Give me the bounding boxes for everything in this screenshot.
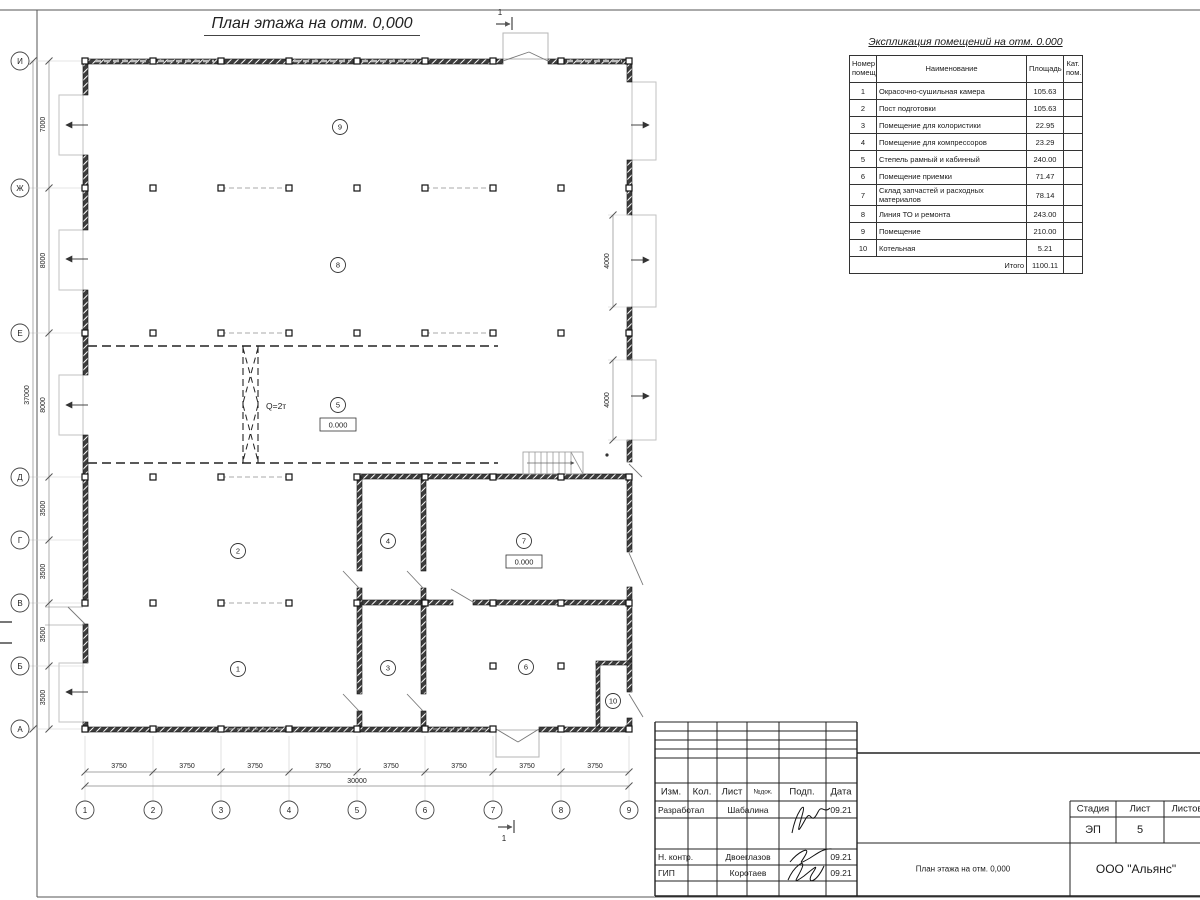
tb-date: 09.21	[830, 868, 851, 878]
grid-bubble-label: Г	[18, 536, 23, 545]
column-marker	[490, 185, 496, 191]
room-number: 4	[386, 537, 390, 546]
room-number-cell: 3	[850, 117, 877, 134]
bottom-door-leaf	[518, 729, 539, 742]
top-vestibule	[503, 33, 548, 59]
vestibules	[496, 33, 548, 757]
walls	[83, 59, 632, 732]
room-area-cell: 5.21	[1027, 240, 1064, 257]
room-cat-cell	[1064, 100, 1083, 117]
tb-company: ООО "Альянс"	[1096, 862, 1176, 876]
room-area-cell: 243.00	[1027, 206, 1064, 223]
dim-label: 3750	[587, 763, 603, 770]
room-number: 5	[336, 401, 340, 410]
room-name-cell: Помещение приемки	[877, 168, 1027, 185]
dim-label: 3750	[519, 763, 535, 770]
elevation-value: 0.000	[515, 558, 534, 567]
column-marker	[558, 474, 564, 480]
column-marker	[82, 58, 88, 64]
signature-stroke	[788, 864, 824, 881]
schedule-row: 7Склад запчастей и расходных материалов7…	[850, 185, 1083, 206]
room-name-cell: Помещение для компрессоров	[877, 134, 1027, 151]
bottom-door-leaf	[496, 729, 518, 742]
grid-bubble-label: 2	[151, 806, 156, 815]
dim-label: 8000	[40, 253, 47, 269]
signature-stroke	[792, 807, 830, 833]
dim-label: 37000	[24, 385, 31, 405]
grid-bubble-label: Е	[17, 329, 22, 338]
column-marker	[422, 185, 428, 191]
column-marker	[626, 726, 632, 732]
room-name-cell: Котельная	[877, 240, 1027, 257]
room-cat-cell	[1064, 168, 1083, 185]
column-marker	[626, 330, 632, 336]
column-marker	[490, 600, 496, 606]
schedule-row: 9Помещение210.00	[850, 223, 1083, 240]
room-number-cell: 2	[850, 100, 877, 117]
column-marker	[218, 330, 224, 336]
room-name-cell: Линия ТО и ремонта	[877, 206, 1027, 223]
tb-col-doc: №док.	[753, 789, 772, 796]
column-marker	[626, 58, 632, 64]
schedule-header-name: Наименование	[877, 56, 1027, 83]
room-number-cell: 1	[850, 83, 877, 100]
room-name-cell: Помещение	[877, 223, 1027, 240]
grid-bubbles: ИЖЕДГВБА123456789	[11, 52, 638, 819]
dim-label: 3750	[247, 763, 263, 770]
column-marker	[150, 600, 156, 606]
dim-label: 4000	[604, 253, 611, 269]
room-area-cell: 240.00	[1027, 151, 1064, 168]
total-label: Итого	[850, 257, 1027, 274]
room-number: 7	[522, 537, 526, 546]
room-area-cell: 210.00	[1027, 223, 1064, 240]
column-marker	[82, 185, 88, 191]
grid-bubble-label: В	[17, 599, 22, 608]
room-cat-cell	[1064, 117, 1083, 134]
room-number: 9	[338, 123, 342, 132]
column-marker	[218, 474, 224, 480]
column-marker	[490, 726, 496, 732]
column-marker	[218, 58, 224, 64]
dim-label: 3500	[40, 501, 47, 517]
room-area-cell: 105.63	[1027, 83, 1064, 100]
tb-col-list: Лист	[722, 787, 743, 798]
grid-bubble-label: И	[17, 57, 23, 66]
column-marker	[490, 474, 496, 480]
column-marker	[422, 474, 428, 480]
room-area-cell: 78.14	[1027, 185, 1064, 206]
schedule-row: 1Окрасочно-сушильная камера105.63	[850, 83, 1083, 100]
grid-bubble-label: 9	[627, 806, 632, 815]
room-schedule: Экспликация помещений на отм. 0.000 Номе…	[849, 36, 1082, 274]
column-marker	[558, 58, 564, 64]
section-mark-label: 1	[498, 8, 503, 17]
grid-bubble-label: 7	[491, 806, 496, 815]
column-marker	[490, 663, 496, 669]
room-name-cell: Помещение для колористики	[877, 117, 1027, 134]
column-marker	[286, 58, 292, 64]
room-number: 10	[609, 697, 617, 706]
elevation-value: 0.000	[329, 421, 348, 430]
bottom-vestibule	[496, 730, 539, 757]
section-mark-label: 1	[502, 834, 507, 843]
column-marker	[82, 474, 88, 480]
room-number: 6	[524, 663, 528, 672]
column-marker	[354, 474, 360, 480]
drawing-sheet: Q=2т 1 1 3750375037503750375037503750375…	[0, 0, 1200, 900]
room-name-cell: Пост подготовки	[877, 100, 1027, 117]
schedule-total-row: Итого1100.11	[850, 257, 1083, 274]
column-marker	[422, 726, 428, 732]
schedule-row: 3Помещение для колористики22.95	[850, 117, 1083, 134]
column-marker	[150, 474, 156, 480]
column-marker	[558, 330, 564, 336]
column-marker	[558, 600, 564, 606]
room-number-cell: 8	[850, 206, 877, 223]
room-name-cell: Степель рамный и кабинный	[877, 151, 1027, 168]
room-area-cell: 22.95	[1027, 117, 1064, 134]
room-number: 2	[236, 547, 240, 556]
column-marker	[286, 185, 292, 191]
room-area-cell: 23.29	[1027, 134, 1064, 151]
column-marker	[82, 726, 88, 732]
column-marker	[558, 726, 564, 732]
grid-bubble-label: 6	[423, 806, 428, 815]
tb-doc-title: План этажа на отм. 0,000	[916, 865, 1010, 874]
top-door-leaf	[503, 52, 529, 61]
column-marker	[354, 185, 360, 191]
tb-role: Разработал	[658, 805, 704, 815]
room-number-cell: 4	[850, 134, 877, 151]
column-marker	[218, 726, 224, 732]
schedule-row: 2Пост подготовки105.63	[850, 100, 1083, 117]
schedule-title: Экспликация помещений на отм. 0.000	[849, 36, 1082, 48]
schedule-header-area: Площадь	[1027, 56, 1064, 83]
room-name-cell: Окрасочно-сушильная камера	[877, 83, 1027, 100]
schedule-table: Номер помещ. Наименование Площадь Кат. п…	[849, 55, 1083, 274]
column-marker	[82, 600, 88, 606]
room-number: 1	[236, 665, 240, 674]
room-area-cell: 105.63	[1027, 100, 1064, 117]
schedule-row: 4Помещение для компрессоров23.29	[850, 134, 1083, 151]
column-marker	[218, 600, 224, 606]
room-cat-cell	[1064, 134, 1083, 151]
grid-bubble-label: Д	[17, 473, 23, 482]
grid-bubble-label: 1	[83, 806, 88, 815]
room-area-cell: 71.47	[1027, 168, 1064, 185]
room-number-cell: 5	[850, 151, 877, 168]
dim-label: 3500	[40, 564, 47, 580]
section-marks	[496, 17, 514, 833]
column-marker	[558, 185, 564, 191]
column-marker	[286, 330, 292, 336]
dim-label: 3500	[40, 627, 47, 643]
column-marker	[490, 330, 496, 336]
dim-label: 3750	[383, 763, 399, 770]
column-marker	[354, 330, 360, 336]
column-marker	[626, 474, 632, 480]
schedule-row: 8Линия ТО и ремонта243.00	[850, 206, 1083, 223]
room-number-cell: 7	[850, 185, 877, 206]
column-marker	[150, 58, 156, 64]
dim-label: 8000	[40, 397, 47, 413]
gate-aprons	[45, 82, 656, 722]
dim-label: 3500	[40, 690, 47, 706]
schedule-header-row: Номер помещ. Наименование Площадь Кат. п…	[850, 56, 1083, 83]
room-cat-cell	[1064, 185, 1083, 206]
dim-label: 3750	[179, 763, 195, 770]
drawing-title: План этажа на отм. 0,000	[204, 15, 420, 36]
column-marker	[354, 726, 360, 732]
room-name-cell: Склад запчастей и расходных материалов	[877, 185, 1027, 206]
tb-name: Коротаев	[730, 868, 767, 878]
crane-capacity-label: Q=2т	[266, 401, 286, 411]
grid-bubble-label: 8	[559, 806, 564, 815]
column-marker	[286, 726, 292, 732]
column-marker	[422, 58, 428, 64]
door-leaves	[68, 52, 643, 742]
schedule-row: 5Степель рамный и кабинный240.00	[850, 151, 1083, 168]
column-marker	[626, 185, 632, 191]
column-marker	[82, 330, 88, 336]
column-marker	[150, 185, 156, 191]
tb-col-izm: Изм.	[661, 787, 681, 798]
tb-stage-header: Стадия	[1077, 804, 1109, 815]
reference-dot	[605, 453, 608, 456]
dim-label: 3750	[111, 763, 127, 770]
column-marker	[354, 600, 360, 606]
schedule-header-number: Номер помещ.	[850, 56, 877, 83]
tb-col-kol: Кол.	[693, 787, 712, 798]
room-cat-cell	[1064, 83, 1083, 100]
column-marker	[626, 600, 632, 606]
room-number-cell: 9	[850, 223, 877, 240]
schedule-row: 6Помещение приемки71.47	[850, 168, 1083, 185]
room-cat-cell	[1064, 206, 1083, 223]
column-marker	[354, 58, 360, 64]
total-cat-cell	[1064, 257, 1083, 274]
top-door-leaf	[529, 52, 548, 61]
crane-zone	[88, 346, 498, 463]
tb-role: Н. контр.	[658, 852, 693, 862]
tb-sheets-header: Листов	[1172, 804, 1200, 815]
grid-bubble-label: 3	[219, 806, 224, 815]
column-marker	[422, 330, 428, 336]
tb-col-data: Дата	[830, 787, 851, 798]
dim-label: 3750	[451, 763, 467, 770]
dim-label: 4000	[604, 392, 611, 408]
stairs	[523, 452, 609, 474]
room-cat-cell	[1064, 240, 1083, 257]
column-marker	[286, 600, 292, 606]
tb-stage-value: ЭП	[1085, 824, 1101, 836]
room-cat-cell	[1064, 151, 1083, 168]
dim-label: 7000	[40, 117, 47, 133]
room-cat-cell	[1064, 223, 1083, 240]
tb-col-podp: Подп.	[789, 787, 814, 798]
column-marker	[490, 58, 496, 64]
grid-bubble-label: Ж	[16, 184, 24, 193]
grid-bubble-label: 4	[287, 806, 292, 815]
room-number: 8	[336, 261, 340, 270]
tb-name: Шабалина	[727, 805, 768, 815]
dim-label: 30000	[347, 778, 367, 785]
schedule-row: 10Котельная5.21	[850, 240, 1083, 257]
column-marker	[558, 663, 564, 669]
column-marker	[422, 600, 428, 606]
column-marker	[150, 726, 156, 732]
dim-label: 3750	[315, 763, 331, 770]
tb-date: 09.21	[830, 805, 851, 815]
grid-bubble-label: Б	[17, 662, 22, 671]
column-marker	[286, 474, 292, 480]
tb-name: Двоеглазов	[725, 852, 770, 862]
tb-date: 09.21	[830, 852, 851, 862]
room-number-cell: 6	[850, 168, 877, 185]
tb-sheet-header: Лист	[1130, 804, 1151, 815]
room-number: 3	[386, 664, 390, 673]
column-marker	[218, 185, 224, 191]
tb-sheet-value: 5	[1137, 824, 1143, 836]
grid-bubble-label: А	[17, 725, 23, 734]
tb-role: ГИП	[658, 868, 675, 878]
column-marker	[150, 330, 156, 336]
total-value: 1100.11	[1027, 257, 1064, 274]
schedule-header-cat: Кат. пом.	[1064, 56, 1083, 83]
room-number-cell: 10	[850, 240, 877, 257]
grid-bubble-label: 5	[355, 806, 360, 815]
